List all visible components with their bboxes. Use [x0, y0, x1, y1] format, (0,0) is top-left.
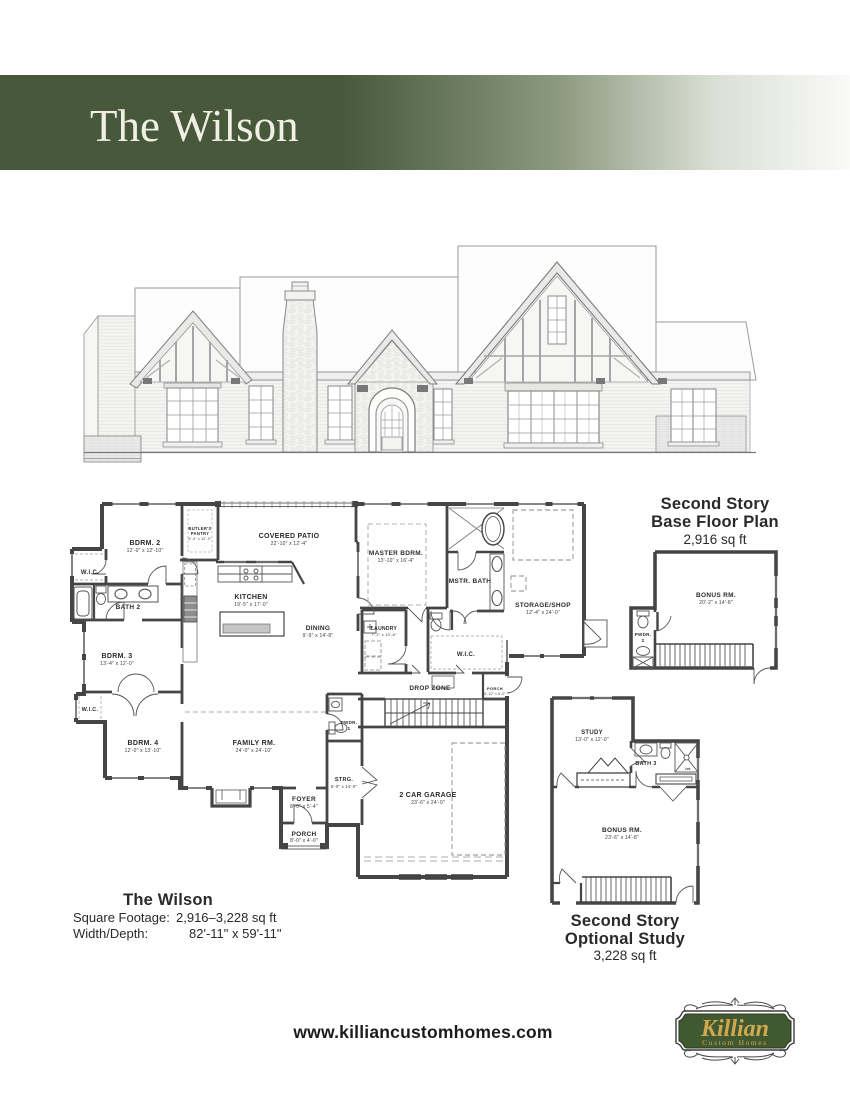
- svg-text:Custom Homes: Custom Homes: [702, 1038, 768, 1047]
- svg-text:13'-0" x 12'-0": 13'-0" x 12'-0": [575, 737, 609, 743]
- svg-text:STUDY: STUDY: [581, 730, 603, 736]
- svg-text:BONUS RM.: BONUS RM.: [696, 592, 736, 599]
- svg-text:20'-2" x 14'-8": 20'-2" x 14'-8": [699, 600, 733, 606]
- svg-text:23'-6" x 14'-8": 23'-6" x 14'-8": [605, 835, 639, 841]
- svg-text:txt: txt: [685, 767, 691, 771]
- svg-text:BATH 3: BATH 3: [635, 761, 656, 767]
- svg-text:2: 2: [642, 638, 645, 643]
- svg-text:PWDR.: PWDR.: [635, 632, 652, 637]
- svg-text:BONUS RM.: BONUS RM.: [602, 827, 642, 834]
